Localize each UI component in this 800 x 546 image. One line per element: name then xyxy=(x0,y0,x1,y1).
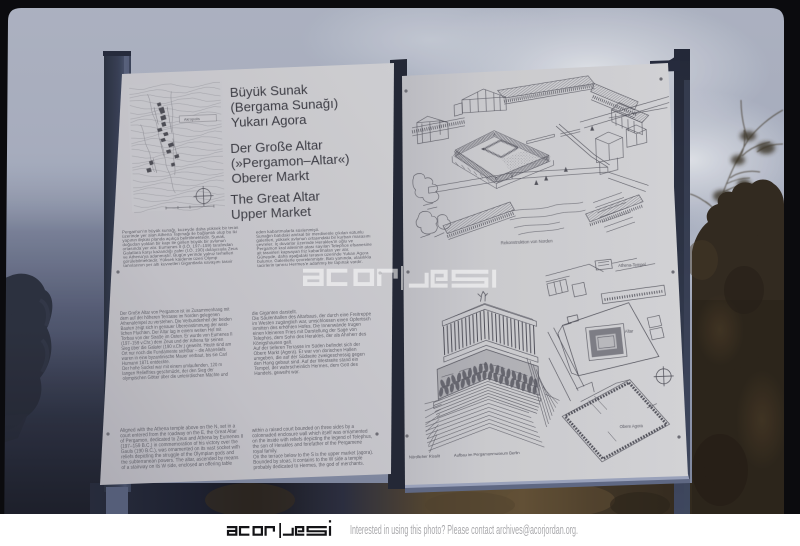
svg-text:Interested in using this photo: Interested in using this photo? Please c… xyxy=(350,522,578,537)
